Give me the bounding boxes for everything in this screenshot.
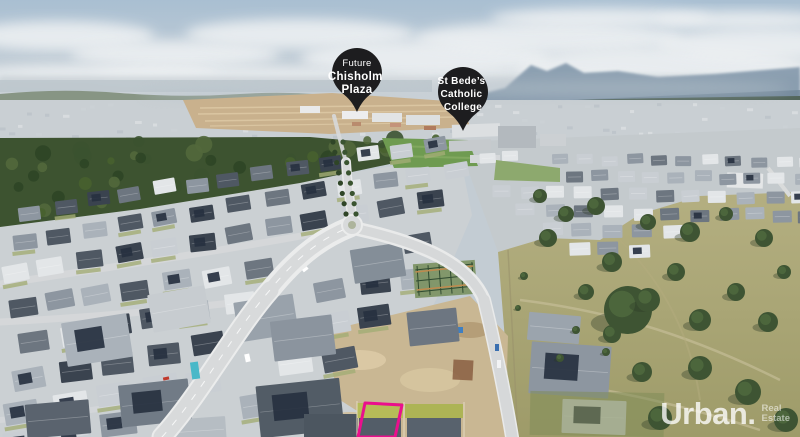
house-roof xyxy=(695,170,712,181)
distant-roof xyxy=(765,116,771,119)
house-roof xyxy=(46,228,72,246)
distant-roof xyxy=(612,131,616,134)
forest-tree xyxy=(133,136,144,147)
distant-roof xyxy=(747,108,753,111)
house-roof xyxy=(777,157,793,167)
street-tree xyxy=(330,139,335,144)
forest-tree xyxy=(14,182,24,192)
forest-tree xyxy=(233,161,246,174)
forest-tree xyxy=(307,151,318,162)
distant-roof xyxy=(657,103,661,106)
house-roof xyxy=(627,153,643,164)
house-roof xyxy=(767,172,784,183)
street-tree xyxy=(348,181,353,186)
street-tree xyxy=(336,170,341,175)
house-roof xyxy=(791,191,800,204)
distant-roof xyxy=(117,130,123,133)
distant-roof xyxy=(9,132,15,135)
house-roof xyxy=(406,307,459,346)
house-roof xyxy=(629,187,647,199)
distant-roof xyxy=(621,127,626,130)
house-roof xyxy=(515,203,534,215)
house-roof xyxy=(602,156,618,166)
house-roof xyxy=(618,171,635,182)
house-roof xyxy=(795,174,800,185)
distant-roof xyxy=(720,107,725,110)
forest-tree xyxy=(363,136,371,144)
distant-roof xyxy=(486,105,491,108)
house-roof xyxy=(743,173,760,184)
house-roof xyxy=(604,205,623,217)
distant-roof xyxy=(36,133,42,136)
house-roof xyxy=(681,190,700,203)
house-roof xyxy=(591,169,609,181)
house-roof xyxy=(502,151,518,161)
street-tree xyxy=(353,211,358,216)
house-roof xyxy=(10,233,38,256)
pin-line: Catholic xyxy=(441,89,483,100)
distant-roof xyxy=(27,113,32,116)
forest-tree xyxy=(107,157,114,164)
house-roof xyxy=(373,171,399,189)
pin-line: College xyxy=(444,102,482,113)
house-roof xyxy=(719,174,736,186)
distant-roof xyxy=(0,127,6,130)
house-roof xyxy=(702,154,718,165)
street-tree xyxy=(340,191,345,196)
house-roof xyxy=(53,199,79,221)
street-tree xyxy=(332,150,337,155)
distant-roof xyxy=(630,110,634,113)
distant-roof xyxy=(783,125,788,128)
distant-roof xyxy=(603,129,610,132)
distant-roof xyxy=(135,121,142,124)
distant-roof xyxy=(522,119,528,122)
house-roof xyxy=(725,156,741,167)
street-tree xyxy=(344,160,349,165)
forest-tree xyxy=(80,159,90,169)
house-roof xyxy=(528,341,611,398)
house-roof xyxy=(82,221,108,239)
house-roof xyxy=(189,233,217,253)
house-roof xyxy=(600,188,619,201)
house-roof xyxy=(602,225,622,238)
house-roof xyxy=(569,242,590,256)
street-tree xyxy=(342,201,347,206)
forest-tree xyxy=(79,177,92,190)
house-roof xyxy=(577,154,593,164)
house-roof xyxy=(690,210,709,222)
street-tree xyxy=(334,160,339,165)
house-roof xyxy=(656,190,674,203)
house-roof xyxy=(388,143,414,165)
house-roof xyxy=(642,172,659,183)
distant-roof xyxy=(594,105,599,108)
house-roof xyxy=(356,145,380,162)
forest-tree xyxy=(6,158,18,170)
distant-roof xyxy=(153,124,157,127)
distant-roof xyxy=(108,103,114,106)
house-roof xyxy=(667,172,684,184)
pin-line: St Bede’s xyxy=(438,76,486,87)
street-tree xyxy=(352,201,357,206)
forest-tree xyxy=(135,153,146,164)
svg-text:St Bede’s Catholic: St Bede’s Catholic College xyxy=(438,76,489,113)
street-tree xyxy=(343,211,348,216)
distant-roof xyxy=(45,114,49,117)
house-roof xyxy=(751,157,767,167)
house-roof xyxy=(74,249,104,274)
aerial-scene: Future Chisholm Plaza St Bede’s Catholic… xyxy=(0,0,800,437)
aerial-photo: Future Chisholm Plaza St Bede’s Catholic… xyxy=(0,0,800,437)
distant-roof xyxy=(792,111,798,114)
house-roof xyxy=(745,207,764,220)
house-roof xyxy=(675,156,691,166)
distant-roof xyxy=(495,105,501,108)
forest-tree xyxy=(72,141,89,158)
house-roof xyxy=(574,186,592,198)
house-roof xyxy=(773,210,792,223)
distant-roof xyxy=(513,111,519,114)
house-roof xyxy=(18,206,42,223)
house-roof xyxy=(186,178,209,194)
pin-line: Chisholm xyxy=(328,71,383,83)
house-roof xyxy=(286,160,309,176)
distant-roof xyxy=(540,120,545,123)
street-tree xyxy=(346,170,351,175)
house-roof xyxy=(216,172,240,189)
house-roof xyxy=(571,223,591,237)
street-tree xyxy=(338,181,343,186)
forest-tree xyxy=(37,162,47,172)
house-roof xyxy=(250,165,274,182)
house-roof xyxy=(566,171,583,182)
house-roof xyxy=(708,191,726,203)
street-tree xyxy=(340,139,345,144)
distant-roof xyxy=(90,105,95,108)
house-roof xyxy=(767,192,785,204)
house-roof xyxy=(25,399,92,437)
house-roof xyxy=(265,216,293,236)
house-roof xyxy=(651,155,667,166)
house-roof xyxy=(736,192,755,205)
distant-roof xyxy=(702,118,708,121)
house-roof xyxy=(87,190,110,206)
svg-text:Future: Future xyxy=(342,58,371,69)
house-roof xyxy=(147,342,181,366)
distant-roof xyxy=(72,135,79,138)
distant-roof xyxy=(63,115,70,118)
distant-roof xyxy=(81,108,86,111)
street-tree xyxy=(350,191,355,196)
street-tree xyxy=(342,150,347,155)
distant-roof xyxy=(18,125,22,128)
house-roof xyxy=(270,314,336,361)
distant-roof xyxy=(477,113,483,116)
distant-roof xyxy=(585,105,590,108)
forest-tree xyxy=(109,177,120,188)
house-roof xyxy=(479,153,495,164)
house-roof xyxy=(546,186,564,198)
house-roof xyxy=(148,237,179,263)
distant-roof xyxy=(558,105,562,108)
distant-roof xyxy=(171,129,177,132)
forest-tree xyxy=(186,144,203,161)
pin-line: Plaza xyxy=(342,84,373,96)
forest-tree xyxy=(28,170,39,181)
house-roof xyxy=(660,208,679,221)
distant-roof xyxy=(693,103,697,106)
house-roof xyxy=(117,280,150,307)
forest-tree xyxy=(205,155,216,166)
pin-line: Future xyxy=(342,58,371,69)
house-roof xyxy=(403,166,431,189)
house-roof xyxy=(552,154,568,165)
house-roof xyxy=(629,244,651,258)
distant-roof xyxy=(360,133,366,136)
distant-roof xyxy=(567,126,573,129)
forest-tree xyxy=(35,145,51,161)
house-roof xyxy=(115,213,144,237)
house-roof xyxy=(492,185,510,197)
house-roof xyxy=(415,189,446,214)
